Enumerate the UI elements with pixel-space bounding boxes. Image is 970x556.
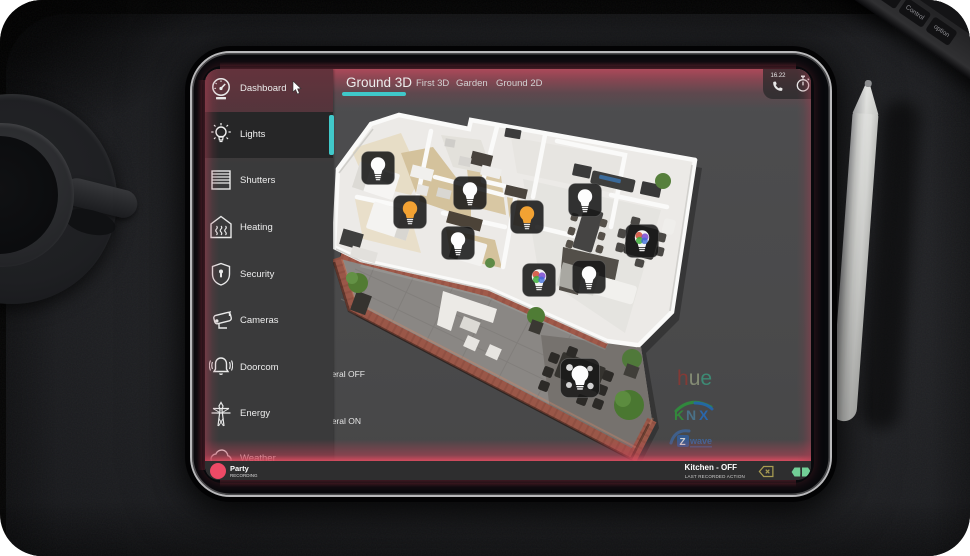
svg-text:N: N	[686, 407, 696, 423]
svg-text:K: K	[674, 407, 684, 423]
svg-text:Z: Z	[680, 437, 686, 448]
svg-text:wave: wave	[689, 436, 712, 446]
svg-text:X: X	[699, 407, 709, 423]
